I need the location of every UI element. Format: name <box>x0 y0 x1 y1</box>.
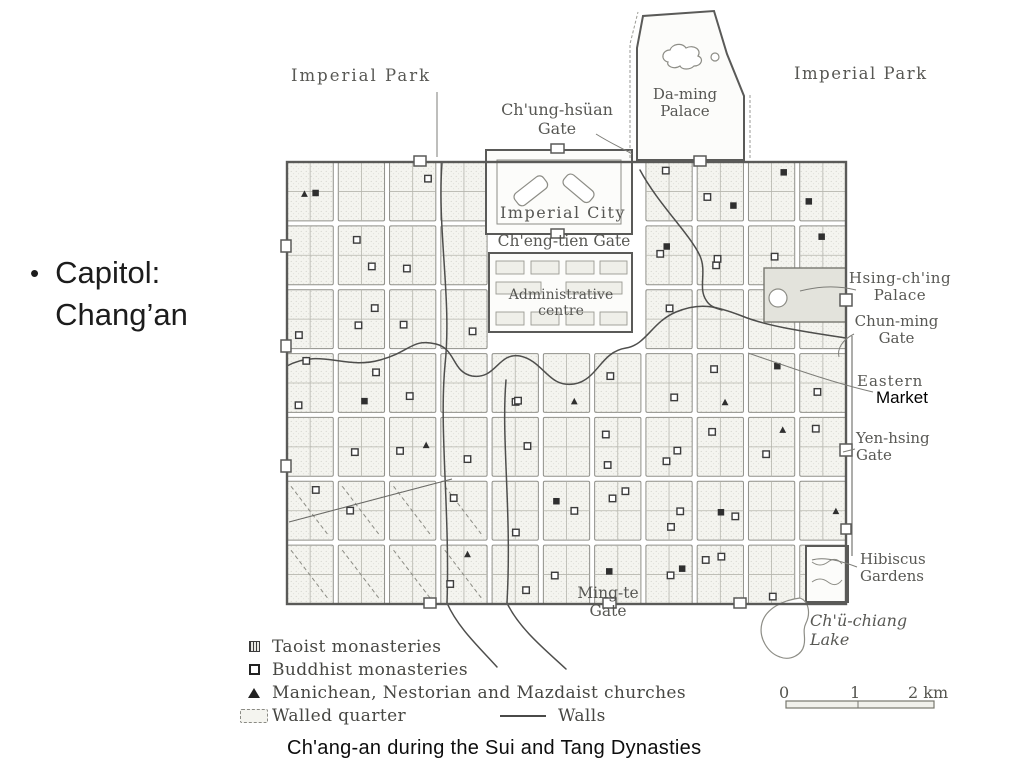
walled-quarter-icon <box>236 709 272 723</box>
scale-tick-2: 2 km <box>908 683 948 702</box>
map-label-administrative-centre: Administrative centre <box>487 287 635 319</box>
legend-label-taoist: Taoist monasteries <box>272 637 441 657</box>
map-label-cheng-tien-gate: Ch'eng-tien Gate <box>490 233 638 251</box>
buddhist-monastery-icon <box>236 664 272 675</box>
scale-bar <box>786 701 934 708</box>
slide: • Capitol: Chang’an <box>0 0 1024 768</box>
legend-row-buddhist: Buddhist monasteries <box>236 658 686 681</box>
map-label-imperial-park-west: Imperial Park <box>291 66 431 85</box>
map-label-chun-ming-gate: Chun-ming Gate <box>844 313 949 348</box>
legend-label-walled-quarter: Walled quarter <box>272 706 486 726</box>
map-label-hibiscus-gardens: Hibiscus Gardens <box>860 551 926 586</box>
legend-row-taoist: Taoist monasteries <box>236 635 686 658</box>
scale-tick-1: 1 <box>850 683 860 702</box>
chung-hsuan-gate-mark <box>551 144 564 153</box>
hibiscus-gardens-block <box>806 546 848 602</box>
map-label-ming-te-gate: Ming-te Gate <box>552 585 664 621</box>
map-label-chu-chiang-lake: Ch'ü-chiang Lake <box>810 612 907 649</box>
map-label-hsing-ching-palace: Hsing-ch'ing Palace <box>844 270 956 305</box>
legend-row-churches: Manichean, Nestorian and Mazdaist church… <box>236 681 686 704</box>
map-label-imperial-park-east: Imperial Park <box>794 64 928 83</box>
walls-line-icon <box>500 715 546 717</box>
scale-tick-0: 0 <box>779 683 789 702</box>
map-legend: Taoist monasteries Buddhist monasteries … <box>236 635 686 727</box>
legend-label-buddhist: Buddhist monasteries <box>272 660 468 680</box>
legend-label-walls: Walls <box>558 706 606 726</box>
map-label-da-ming-palace: Da-ming Palace <box>642 86 728 121</box>
map-label-chung-hsuan-gate: Ch'ung-hsüan Gate <box>477 101 637 138</box>
legend-row-walled-quarter: Walled quarter Walls <box>236 704 686 727</box>
church-triangle-icon <box>236 688 272 698</box>
taoist-monastery-icon <box>236 641 272 652</box>
changan-map-figure: Imperial ParkImperial ParkCh'ung-hsüan G… <box>0 0 1024 768</box>
map-label-imperial-city: Imperial City <box>493 204 633 223</box>
map-label-eastern-market-annotation: Market <box>876 388 928 408</box>
map-label-yen-hsing-gate: Yen-hsing Gate <box>856 430 930 465</box>
legend-label-churches: Manichean, Nestorian and Mazdaist church… <box>272 683 686 703</box>
map-caption: Ch'ang-an during the Sui and Tang Dynast… <box>287 737 701 760</box>
chu-chiang-lake-shape <box>761 598 808 658</box>
